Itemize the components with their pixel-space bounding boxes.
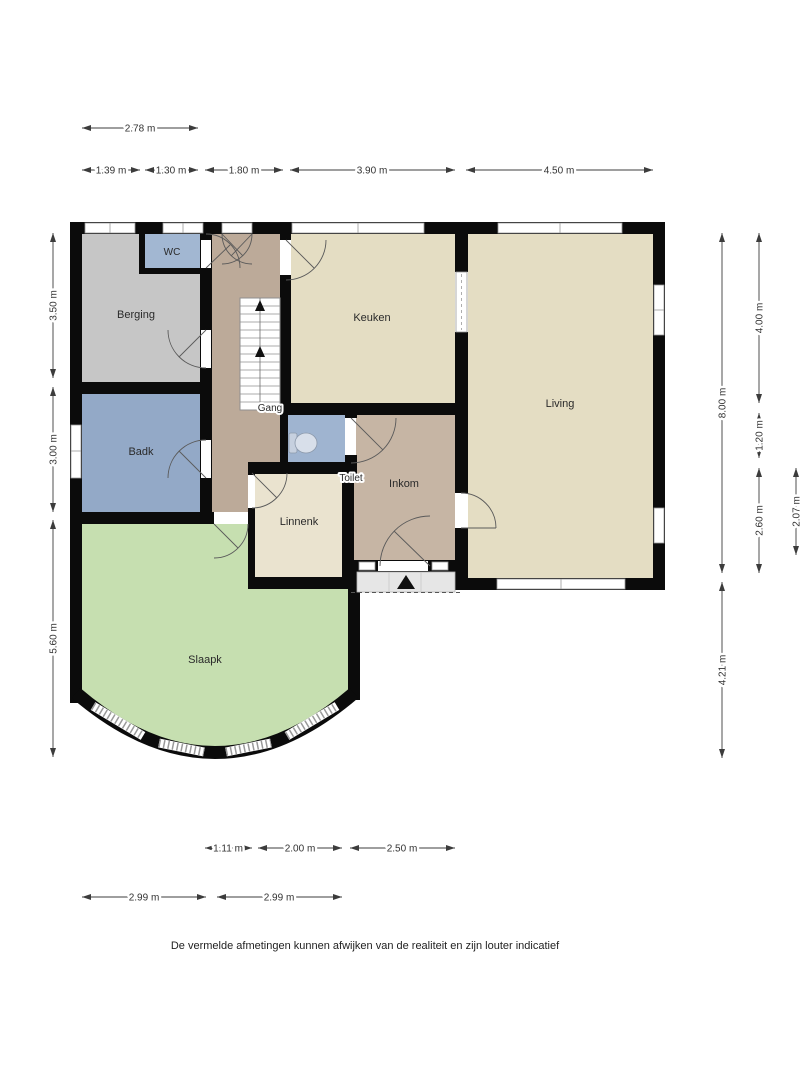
wall-segment <box>455 415 468 493</box>
dim-bottom-segments: 1.11 m 2.00 m 2.50 m <box>205 844 455 855</box>
window <box>292 223 424 233</box>
door-opening <box>281 240 290 275</box>
room-label-slaapk: Slaapk <box>188 654 222 666</box>
disclaimer-text: De vermelde afmetingen kunnen afwijken v… <box>171 940 560 952</box>
dim-bottom-overall: 2.99 m 2.99 m <box>82 893 342 904</box>
dim-label: 1.80 m <box>229 166 260 177</box>
room-label-toilet: Toilet <box>339 473 363 484</box>
dim-label: 2.99 m <box>264 893 295 904</box>
wall-segment <box>280 275 291 415</box>
dim-top-overall: 2.78 m <box>82 124 198 135</box>
entry-sidelight <box>359 562 375 570</box>
room-label-berging: Berging <box>117 309 155 321</box>
door-opening <box>214 513 248 523</box>
dim-top-segments: 1.39 m 1.30 m 1.80 m 3.90 m 4.50 m <box>82 166 653 177</box>
dim-right-segments: 4.00 m 1.20 m 2.60 m <box>755 233 766 573</box>
door-opening <box>201 440 211 478</box>
wall-segment <box>248 577 354 589</box>
dim-label: 2.99 m <box>129 893 160 904</box>
staircase <box>240 298 280 410</box>
room-label-gang: Gang <box>258 403 282 414</box>
dim-label: 2.07 m <box>792 496 803 527</box>
toilet-fixture <box>289 433 317 453</box>
door-opening <box>456 493 467 528</box>
room-label-badk: Badk <box>128 446 154 458</box>
door-opening <box>249 475 255 508</box>
wall-segment <box>345 415 357 418</box>
dim-label: 3.50 m <box>49 290 60 321</box>
window <box>222 223 252 233</box>
wall-segment <box>280 403 468 415</box>
door-opening <box>201 330 211 368</box>
window <box>71 425 81 478</box>
entry-sidelight <box>432 562 448 570</box>
wall-segment <box>455 332 468 415</box>
door-opening <box>201 240 211 268</box>
wall-segment <box>70 512 214 524</box>
wall-segment <box>455 528 468 578</box>
door-opening <box>346 418 356 455</box>
dim-label: 4.50 m <box>544 166 575 177</box>
window <box>85 223 135 233</box>
dim-label: 1.11 m <box>213 844 243 855</box>
dim-label: 4.21 m <box>718 655 729 686</box>
dim-label: 2.00 m <box>285 844 316 855</box>
dim-label: 1.30 m <box>156 166 187 177</box>
dim-right-inner: 2.07 m <box>792 468 803 555</box>
floorplan-svg: WC Berging Badk Gang Keuken Living Toile… <box>0 0 810 1080</box>
dim-label: 8.00 m <box>718 388 729 419</box>
wall-segment <box>139 268 202 274</box>
dim-label: 2.50 m <box>387 844 418 855</box>
entry-porch <box>351 572 460 593</box>
wall-segment <box>248 462 255 475</box>
interior-window <box>456 272 467 332</box>
wall-segment <box>200 234 212 524</box>
window <box>498 223 622 233</box>
door-opening <box>378 561 428 571</box>
dim-label: 3.00 m <box>49 434 60 465</box>
floorplan-page: WC Berging Badk Gang Keuken Living Toile… <box>0 0 810 1080</box>
wall-segment <box>455 222 468 272</box>
wall-segment <box>280 222 291 240</box>
dim-label: 3.90 m <box>357 166 388 177</box>
window <box>497 579 625 589</box>
room-label-linnenk: Linnenk <box>280 516 319 528</box>
dim-label: 5.60 m <box>49 623 60 654</box>
wall-segment <box>70 382 212 394</box>
wall-segment <box>248 508 255 589</box>
window <box>163 223 203 233</box>
window <box>654 285 664 335</box>
window <box>654 508 664 543</box>
room-label-wc: WC <box>164 247 181 258</box>
dim-left-segments: 3.50 m 3.00 m 5.60 m <box>49 233 60 757</box>
dim-label: 1.39 m <box>96 166 127 177</box>
dim-label: 1.20 m <box>755 420 766 451</box>
room-label-living: Living <box>546 398 575 410</box>
dim-right-overall: 8.00 m 4.21 m <box>718 233 729 758</box>
wall-segment <box>139 234 145 268</box>
room-label-inkom: Inkom <box>389 478 419 490</box>
dim-label: 2.60 m <box>755 505 766 536</box>
room-label-keuken: Keuken <box>353 312 390 324</box>
dim-label: 4.00 m <box>755 303 766 334</box>
dim-label: 2.78 m <box>125 124 156 135</box>
